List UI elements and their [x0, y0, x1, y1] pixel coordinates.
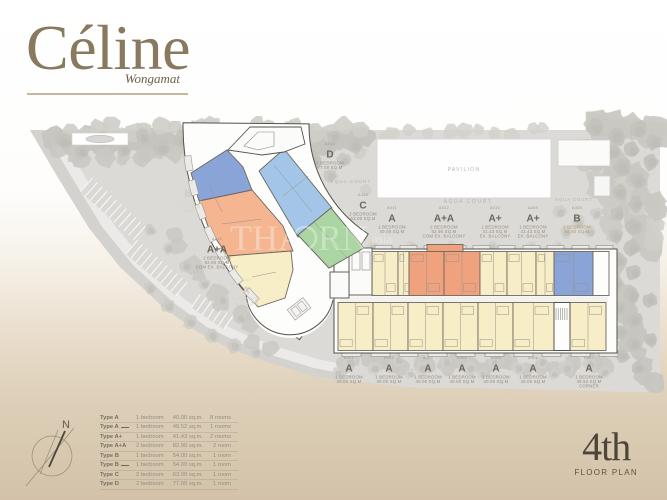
- svg-text:AQUA COURT: AQUA COURT: [331, 179, 372, 184]
- svg-text:A409: A409: [528, 206, 538, 210]
- svg-text:A: A: [388, 214, 395, 225]
- svg-text:A401: A401: [344, 356, 354, 360]
- svg-text:54.90 SQ.M: 54.90 SQ.M: [565, 229, 590, 234]
- svg-text:A404: A404: [457, 356, 467, 360]
- svg-text:40.00 SQ.M: 40.00 SQ.M: [380, 229, 405, 234]
- svg-text:AQUA COURT: AQUA COURT: [555, 197, 593, 202]
- svg-text:D: D: [326, 150, 333, 161]
- svg-text:A413: A413: [358, 193, 368, 197]
- svg-text:RN: RN: [318, 218, 368, 258]
- svg-text:EX. BALCONY: EX. BALCONY: [518, 234, 549, 239]
- svg-text:A+A: A+A: [434, 214, 454, 225]
- svg-text:B: B: [573, 214, 580, 225]
- svg-text:40.00 SQ.M: 40.00 SQ.M: [234, 301, 259, 306]
- svg-text:A403: A403: [423, 356, 433, 360]
- svg-text:A414: A414: [325, 142, 335, 146]
- svg-text:A406: A406: [528, 356, 538, 360]
- svg-text:EX. BALCONY: EX. BALCONY: [480, 234, 511, 239]
- svg-text:A: A: [385, 364, 392, 375]
- svg-text:PAVILION: PAVILION: [448, 167, 481, 173]
- svg-text:A+: A+: [526, 214, 539, 225]
- svg-text:77.00 SQ.M: 77.00 SQ.M: [318, 165, 343, 170]
- svg-text:A407: A407: [584, 356, 594, 360]
- svg-text:AQUA COURT: AQUA COURT: [444, 199, 493, 205]
- svg-text:A: A: [424, 364, 431, 375]
- svg-text:40.00 SQ.M: 40.00 SQ.M: [484, 379, 509, 384]
- svg-text:A: A: [529, 364, 536, 375]
- svg-text:A: A: [585, 364, 592, 375]
- svg-text:A: A: [458, 364, 465, 375]
- svg-text:COM EX. BALCONY: COM EX. BALCONY: [196, 265, 239, 270]
- svg-text:A402: A402: [384, 356, 394, 360]
- svg-text:A+A: A+A: [207, 245, 227, 256]
- svg-text:CORNER: CORNER: [579, 384, 599, 389]
- svg-text:A405: A405: [491, 356, 501, 360]
- svg-text:A412: A412: [439, 206, 449, 210]
- svg-text:A415: A415: [241, 278, 251, 282]
- svg-text:N: N: [62, 419, 70, 431]
- svg-text:63.00 SQ.M: 63.00 SQ.M: [351, 216, 376, 221]
- svg-text:40.00 SQ.M: 40.00 SQ.M: [450, 379, 475, 384]
- svg-text:COM EX. BALCONY: COM EX. BALCONY: [423, 234, 466, 239]
- svg-text:A417: A417: [183, 181, 193, 185]
- svg-text:40.00 SQ.M: 40.00 SQ.M: [337, 379, 362, 384]
- svg-text:A+: A+: [488, 214, 501, 225]
- svg-text:A: A: [345, 364, 352, 375]
- svg-text:A411: A411: [387, 206, 397, 210]
- svg-text:CORNER: CORNER: [178, 209, 198, 214]
- svg-text:A416: A416: [212, 237, 222, 241]
- svg-text:A408: A408: [572, 206, 582, 210]
- svg-text:A: A: [242, 286, 249, 297]
- svg-text:40.00 SQ.M: 40.00 SQ.M: [416, 379, 441, 384]
- svg-text:B: B: [184, 189, 191, 200]
- svg-text:A: A: [492, 364, 499, 375]
- svg-text:A410: A410: [490, 206, 500, 210]
- svg-text:40.00 SQ.M: 40.00 SQ.M: [377, 379, 402, 384]
- svg-text:40.00 SQ.M: 40.00 SQ.M: [521, 379, 546, 384]
- svg-text:C: C: [359, 201, 366, 212]
